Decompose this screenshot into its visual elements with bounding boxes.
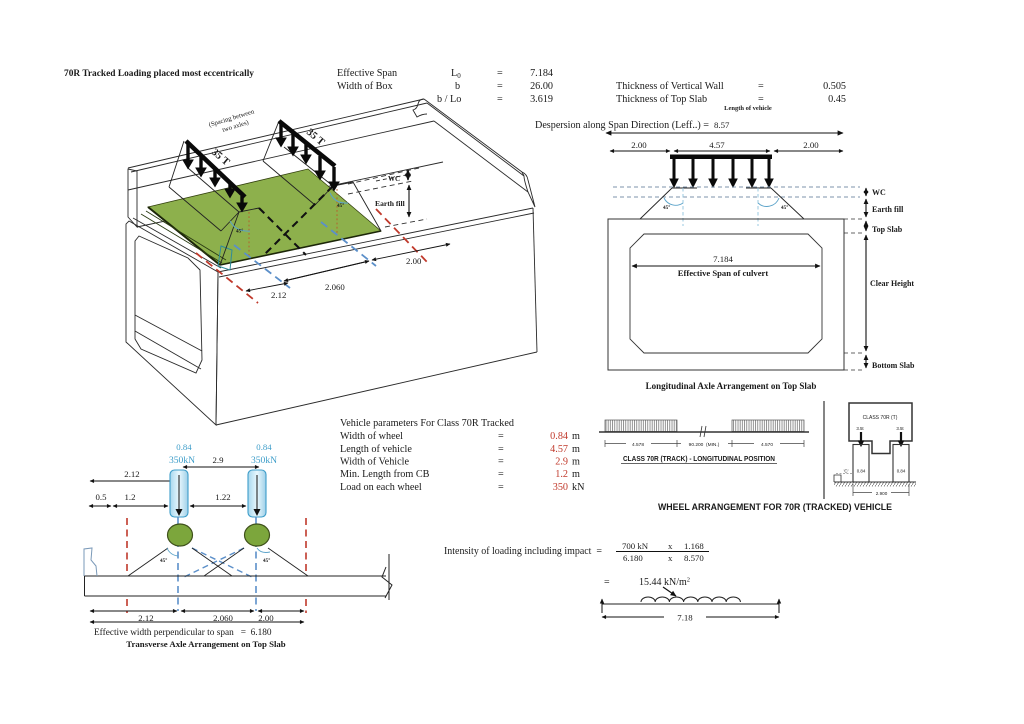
svg-text:Earth fill: Earth fill bbox=[375, 199, 405, 208]
svg-text:3.619: 3.619 bbox=[530, 94, 553, 105]
svg-text:350kN: 350kN bbox=[169, 455, 195, 466]
svg-text:2.00: 2.00 bbox=[406, 256, 422, 266]
svg-text:Load on each wheel: Load on each wheel bbox=[340, 482, 422, 493]
svg-text:45°: 45° bbox=[337, 202, 344, 209]
svg-text:Width of Vehicle: Width of Vehicle bbox=[340, 457, 409, 468]
svg-text:90.200 (MIN.): 90.200 (MIN.) bbox=[689, 442, 720, 448]
svg-text:WC: WC bbox=[872, 188, 886, 197]
svg-text:350: 350 bbox=[553, 482, 568, 493]
svg-text:=: = bbox=[498, 469, 504, 480]
svg-text:1.22: 1.22 bbox=[215, 492, 230, 502]
svg-text:b: b bbox=[455, 81, 460, 92]
svg-text:Length of vehicle: Length of vehicle bbox=[724, 105, 772, 112]
svg-text:=: = bbox=[497, 94, 503, 105]
svg-text:4.57: 4.57 bbox=[709, 140, 725, 150]
svg-text:1.2: 1.2 bbox=[555, 469, 568, 480]
svg-text:x: x bbox=[668, 541, 673, 551]
svg-text:Transverse Axle Arrangement on: Transverse Axle Arrangement on Top Slab bbox=[126, 639, 286, 649]
svg-text:2.12: 2.12 bbox=[124, 469, 139, 479]
svg-text:0.505: 0.505 bbox=[823, 81, 846, 92]
svg-text:0.84: 0.84 bbox=[256, 442, 272, 452]
svg-text:1.168: 1.168 bbox=[684, 541, 704, 551]
svg-text:7.184: 7.184 bbox=[530, 68, 553, 79]
svg-text:26.00: 26.00 bbox=[530, 81, 553, 92]
svg-text:b / Lo: b / Lo bbox=[437, 94, 461, 105]
svg-text:4.57: 4.57 bbox=[550, 444, 568, 455]
svg-text:CLASS 70R (TRACK) - LONGITUDIN: CLASS 70R (TRACK) - LONGITUDINAL POSITIO… bbox=[623, 454, 775, 463]
svg-text:=: = bbox=[498, 444, 504, 455]
svg-text:Min. Length from CB: Min. Length from CB bbox=[340, 469, 430, 480]
svg-text:Despersion along Span Directio: Despersion along Span Direction (Leff..)… bbox=[535, 120, 709, 131]
svg-text:Thickness of Vertical Wall: Thickness of Vertical Wall bbox=[616, 81, 724, 92]
svg-text:Length of vehicle: Length of vehicle bbox=[340, 444, 412, 455]
svg-text:2.00: 2.00 bbox=[258, 613, 274, 623]
svg-text:=: = bbox=[604, 577, 610, 588]
svg-text:Bottom Slab: Bottom Slab bbox=[872, 361, 915, 370]
svg-text:70R Tracked Loading placed mos: 70R Tracked Loading placed most eccentri… bbox=[64, 69, 254, 79]
svg-text:7.184: 7.184 bbox=[713, 254, 733, 264]
svg-text:45°: 45° bbox=[263, 557, 270, 564]
svg-text:8.570: 8.570 bbox=[684, 553, 704, 563]
svg-text:0.45: 0.45 bbox=[828, 94, 846, 105]
svg-text:7.18: 7.18 bbox=[677, 613, 693, 623]
svg-text:Thickness of Top Slab: Thickness of Top Slab bbox=[616, 94, 707, 105]
svg-text:Earth fill: Earth fill bbox=[872, 205, 904, 214]
svg-text:0.84: 0.84 bbox=[176, 442, 192, 452]
svg-text:2.9: 2.9 bbox=[555, 457, 568, 468]
svg-text:kN: kN bbox=[572, 482, 585, 493]
svg-text:0.5: 0.5 bbox=[96, 492, 108, 502]
svg-text:45°: 45° bbox=[236, 228, 243, 235]
svg-text:3.5t: 3.5t bbox=[896, 426, 904, 431]
svg-text:Intensity of loading including: Intensity of loading including impact = bbox=[444, 546, 602, 557]
svg-text:Effective Span of culvert: Effective Span of culvert bbox=[678, 268, 769, 278]
svg-text:m: m bbox=[572, 444, 580, 455]
svg-text:4.570: 4.570 bbox=[761, 442, 773, 448]
svg-text:=: = bbox=[498, 482, 504, 493]
svg-text:m: m bbox=[572, 469, 580, 480]
svg-text:CLASS 70R (T): CLASS 70R (T) bbox=[863, 415, 898, 421]
svg-text:2.900: 2.900 bbox=[876, 491, 888, 496]
svg-text:m: m bbox=[572, 431, 580, 442]
svg-text:45°: 45° bbox=[781, 204, 788, 211]
svg-text:350kN: 350kN bbox=[251, 455, 277, 466]
svg-text:2.00: 2.00 bbox=[631, 140, 647, 150]
svg-text:Width of Box: Width of Box bbox=[337, 81, 393, 92]
svg-text:Vehicle parameters For Class 7: Vehicle parameters For Class 70R Tracked bbox=[340, 418, 514, 429]
svg-text:=: = bbox=[758, 94, 764, 105]
svg-text:2.00: 2.00 bbox=[803, 140, 819, 150]
svg-text:Effective width perpendicular: Effective width perpendicular to span = … bbox=[94, 627, 272, 638]
svg-text:1.2: 1.2 bbox=[125, 492, 136, 502]
svg-text:=: = bbox=[498, 431, 504, 442]
svg-text:2.12: 2.12 bbox=[138, 613, 153, 623]
svg-text:3.5t: 3.5t bbox=[856, 426, 864, 431]
svg-text:2.060: 2.060 bbox=[213, 613, 233, 623]
svg-text:Effective Span: Effective Span bbox=[337, 68, 397, 79]
svg-text:4.578: 4.578 bbox=[632, 442, 644, 448]
svg-text:=: = bbox=[498, 457, 504, 468]
svg-text:700 kN: 700 kN bbox=[622, 541, 649, 551]
svg-text:2.060: 2.060 bbox=[325, 282, 345, 292]
svg-text:Width of wheel: Width of wheel bbox=[340, 431, 403, 442]
svg-text:2.9: 2.9 bbox=[213, 455, 225, 465]
svg-text:Top Slab: Top Slab bbox=[872, 225, 903, 234]
svg-text:0.84: 0.84 bbox=[857, 469, 866, 474]
svg-text:'C': 'C' bbox=[844, 469, 849, 474]
svg-text:WC: WC bbox=[388, 175, 400, 183]
svg-text:6.180: 6.180 bbox=[623, 553, 643, 563]
svg-text:45°: 45° bbox=[160, 557, 167, 564]
svg-text:Longitudinal Axle Arrangement: Longitudinal Axle Arrangement on Top Sla… bbox=[646, 381, 817, 391]
svg-text:8.57: 8.57 bbox=[714, 120, 730, 130]
svg-text:45°: 45° bbox=[663, 204, 670, 211]
svg-text:=: = bbox=[497, 68, 503, 79]
svg-text:2.12: 2.12 bbox=[271, 290, 286, 300]
svg-text:Clear Height: Clear Height bbox=[870, 279, 914, 288]
svg-text:x: x bbox=[668, 553, 673, 563]
svg-text:=: = bbox=[497, 81, 503, 92]
svg-text:15.44 kN/m2: 15.44 kN/m2 bbox=[639, 577, 690, 589]
svg-text:0.84: 0.84 bbox=[897, 469, 906, 474]
svg-text:m: m bbox=[572, 457, 580, 468]
svg-text:WHEEL ARRANGEMENT FOR 70R (TRA: WHEEL ARRANGEMENT FOR 70R (TRACKED) VEHI… bbox=[658, 501, 892, 512]
svg-text:=: = bbox=[758, 81, 764, 92]
svg-text:0.84: 0.84 bbox=[550, 431, 568, 442]
